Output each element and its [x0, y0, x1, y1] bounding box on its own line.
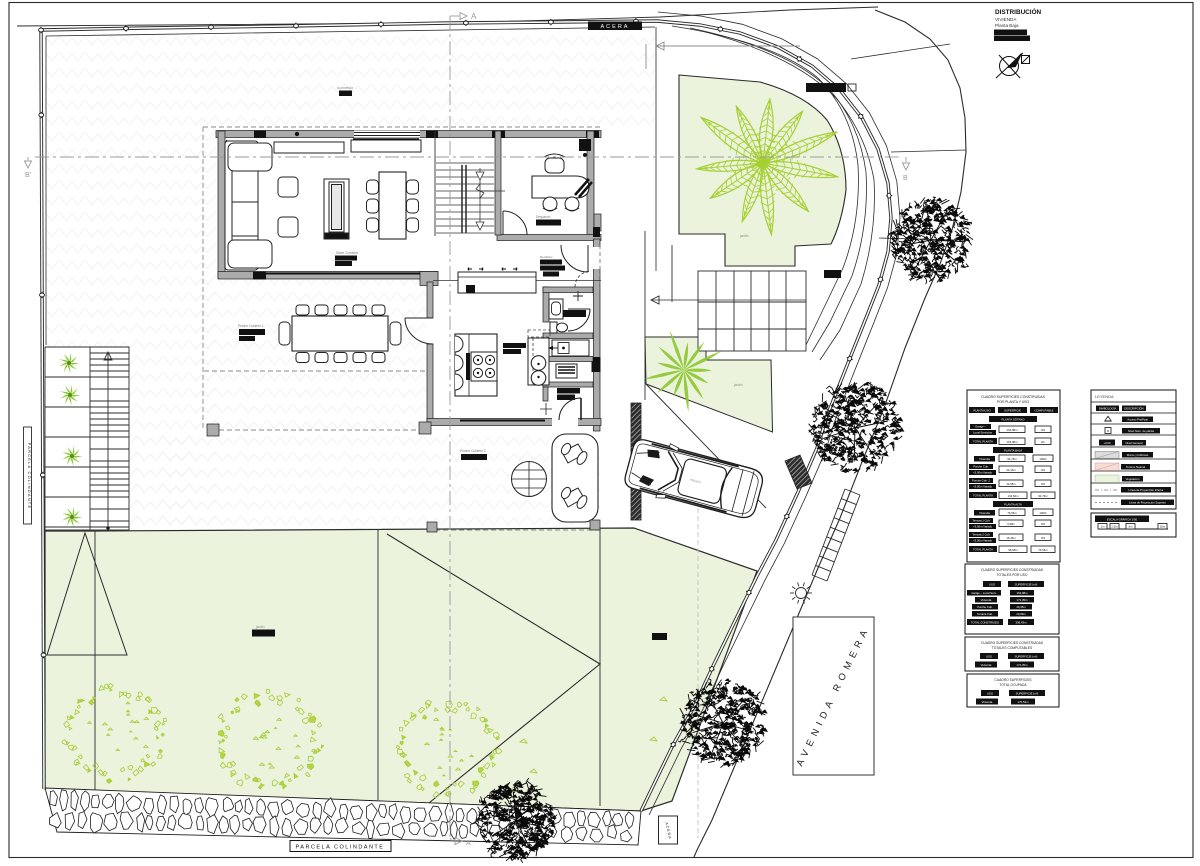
svg-text:VIVIENDA: VIVIENDA	[995, 17, 1017, 22]
svg-text:Porche Cubierto 2: Porche Cubierto 2	[460, 449, 486, 453]
svg-text:B: B	[903, 175, 908, 182]
svg-text:Acometida: Acometida	[337, 86, 353, 90]
svg-text:Línea de Proyección Inferior: Línea de Proyección Inferior	[1129, 488, 1164, 492]
svg-text:SUPERFICIE (m²): SUPERFICIE (m²)	[1015, 655, 1038, 659]
svg-text:<3,00m Varado: <3,00m Varado	[973, 525, 992, 529]
svg-text:2,5m: 2,5m	[1111, 525, 1118, 529]
svg-text:171,35m: 171,35m	[1017, 598, 1029, 602]
svg-text:0%: 0%	[1041, 468, 1046, 472]
svg-text:0%: 0%	[1041, 522, 1046, 526]
svg-text:1m: 1m	[1101, 525, 1106, 529]
svg-text:Garaje –: Garaje –	[975, 425, 986, 429]
svg-text:jardín: jardín	[255, 625, 265, 629]
svg-text:Local Servicios: Local Servicios	[973, 431, 992, 435]
svg-text:Terraza Cub.: Terraza Cub.	[977, 612, 993, 616]
svg-text:Terreno Natural: Terreno Natural	[1126, 465, 1146, 469]
svg-text:0%: 0%	[1041, 428, 1046, 432]
svg-text:94,79m: 94,79m	[1007, 457, 1017, 461]
svg-text:PARCELA COLINDANTE: PARCELA COLINDANTE	[27, 443, 32, 510]
svg-text:USO: USO	[987, 692, 994, 696]
svg-text:jardín: jardín	[733, 383, 743, 387]
svg-text:164,98m: 164,98m	[1017, 591, 1029, 595]
svg-text:TOTAL CONSTRUIDO: TOTAL CONSTRUIDO	[971, 621, 1000, 625]
svg-text:Planta Baja: Planta Baja	[995, 23, 1019, 28]
svg-text:Salón Comedor: Salón Comedor	[336, 251, 359, 255]
svg-text:134,84m: 134,84m	[1008, 494, 1020, 498]
svg-text:SIMBOLOGÍA: SIMBOLOGÍA	[1099, 407, 1117, 411]
svg-text:100%: 100%	[1039, 511, 1047, 515]
svg-text:Vivienda: Vivienda	[982, 700, 993, 704]
svg-text:Línea de Proyección Superior: Línea de Proyección Superior	[1129, 501, 1166, 505]
svg-text:76,56m: 76,56m	[1007, 511, 1017, 515]
svg-text:Vivienda: Vivienda	[979, 511, 990, 515]
svg-text:PLANTA ALTA: PLANTA ALTA	[1004, 503, 1022, 507]
svg-text:Recibidor: Recibidor	[540, 255, 553, 259]
svg-text:TOTALES COMPUTABLES: TOTALES COMPUTABLES	[992, 646, 1033, 650]
svg-text:B′: B′	[25, 172, 32, 179]
svg-text:Vivienda: Vivienda	[981, 598, 992, 602]
svg-text:CUADRO SUPERFICIES CONSTRUIDAS: CUADRO SUPERFICIES CONSTRUIDAS	[981, 568, 1044, 572]
svg-text:171,35m: 171,35m	[1017, 663, 1029, 667]
svg-text:23,15m: 23,15m	[1006, 468, 1016, 472]
svg-text:164,98m: 164,98m	[1007, 440, 1019, 444]
svg-text:DISTRIBUCIÓN: DISTRIBUCIÓN	[995, 7, 1042, 16]
svg-text:98,68m: 98,68m	[1008, 548, 1018, 552]
svg-text:SUPERFICIE (m²): SUPERFICIE (m²)	[1016, 692, 1039, 696]
svg-text:ESCALA GRÁFICA 1/50: ESCALA GRÁFICA 1/50	[1107, 518, 1138, 522]
svg-text:Terraza 1 Cub: Terraza 1 Cub	[972, 519, 990, 523]
svg-text:PLANTA/USO: PLANTA/USO	[973, 409, 991, 413]
svg-text:USO: USO	[986, 655, 993, 659]
svg-text:TOTAL OCUPADA: TOTAL OCUPADA	[999, 683, 1027, 687]
svg-text:0m: 0m	[1041, 440, 1046, 444]
svg-text:170,54m: 170,54m	[1018, 700, 1030, 704]
svg-text:Vivienda: Vivienda	[981, 663, 992, 667]
svg-text:Nivel General: Nivel General	[1126, 441, 1143, 445]
svg-text:TOTAL PLANTA: TOTAL PLANTA	[973, 548, 993, 552]
svg-text:ACERA: ACERA	[601, 24, 630, 30]
svg-text:TOTAL PLANTA: TOTAL PLANTA	[973, 494, 993, 498]
svg-text:CUADRO SUPERFICIES CONSTRUIDAS: CUADRO SUPERFICIES CONSTRUIDAS	[981, 395, 1046, 399]
svg-text:3,68m: 3,68m	[1007, 522, 1015, 526]
svg-text:10m: 10m	[1160, 525, 1166, 529]
svg-text:+0,00: +0,00	[1103, 441, 1111, 445]
svg-text:0%: 0%	[1041, 482, 1046, 486]
svg-text:164,98m: 164,98m	[1007, 428, 1019, 432]
svg-text:N: N	[1107, 429, 1109, 433]
svg-text:PARCELA COLINDANTE: PARCELA COLINDANTE	[296, 845, 385, 851]
svg-text:PLANTA SÓTANO: PLANTA SÓTANO	[1002, 417, 1026, 422]
svg-text:<3,00m Varado: <3,00m Varado	[973, 485, 992, 489]
svg-text:Muros y Fábricas: Muros y Fábricas	[1127, 453, 1149, 457]
svg-text:Porche Cub. 2: Porche Cub. 2	[972, 479, 990, 483]
svg-text:PLANTA BAJA: PLANTA BAJA	[1004, 449, 1022, 453]
svg-text:0%: 0%	[1041, 536, 1046, 540]
svg-text:20,09m: 20,09m	[1016, 612, 1026, 616]
svg-text:TOTAL PLANTA: TOTAL PLANTA	[973, 440, 993, 444]
svg-text:TOTALES POR USO: TOTALES POR USO	[997, 573, 1028, 577]
svg-text:100%: 100%	[1039, 457, 1047, 461]
svg-text:76,56m: 76,56m	[1038, 548, 1048, 552]
svg-text:USO: USO	[989, 583, 996, 587]
svg-text:Acceso Pta/Ppal: Acceso Pta/Ppal	[1127, 418, 1148, 422]
svg-text:Vegetación: Vegetación	[1126, 477, 1140, 481]
svg-text:40,35m: 40,35m	[1016, 605, 1026, 609]
svg-text:5m: 5m	[1129, 525, 1134, 529]
svg-text:A′: A′	[466, 840, 473, 847]
svg-text:<3,00m Varado: <3,00m Varado	[973, 539, 992, 543]
svg-text:CUADRO SUPERFICIES: CUADRO SUPERFICIES	[994, 678, 1032, 682]
svg-text:15,45m: 15,45m	[1006, 536, 1016, 540]
svg-text:CUADRO SUPERFICIES CONSTRUIDAS: CUADRO SUPERFICIES CONSTRUIDAS	[981, 641, 1044, 645]
svg-text:LEYENDA: LEYENDA	[1095, 394, 1114, 399]
svg-text:14,95m: 14,95m	[1006, 482, 1016, 486]
svg-text:DESCRIPCIÓN: DESCRIPCIÓN	[1124, 406, 1143, 411]
svg-text:SUPERFICIE: SUPERFICIE	[1004, 409, 1021, 413]
svg-text:396,43m: 396,43m	[1016, 621, 1028, 625]
svg-text:Terraza 2 Cub: Terraza 2 Cub	[972, 533, 990, 537]
svg-text:Porche Cubierto 1: Porche Cubierto 1	[238, 324, 264, 328]
svg-text:Porche Cub.: Porche Cub.	[973, 465, 989, 469]
svg-text:Nivel Núm. de planta: Nivel Núm. de planta	[1128, 429, 1154, 433]
svg-text:94,79m: 94,79m	[1038, 494, 1048, 498]
svg-text:Vivienda: Vivienda	[979, 457, 990, 461]
svg-text:A: A	[471, 12, 477, 21]
svg-text:<3,00m Varado: <3,00m Varado	[973, 471, 992, 475]
svg-text:POR PLANTA Y USO: POR PLANTA Y USO	[997, 400, 1030, 404]
svg-text:jardín: jardín	[739, 234, 749, 238]
svg-text:SUPERFICIE (m²): SUPERFICIE (m²)	[1015, 583, 1038, 587]
svg-text:Porche Cub.: Porche Cub.	[977, 605, 993, 609]
svg-text:COMPUTABLE: COMPUTABLE	[1034, 409, 1053, 413]
svg-text:Garaje – Local Serv.: Garaje – Local Serv.	[971, 591, 997, 595]
svg-text:Despacho: Despacho	[536, 215, 551, 219]
